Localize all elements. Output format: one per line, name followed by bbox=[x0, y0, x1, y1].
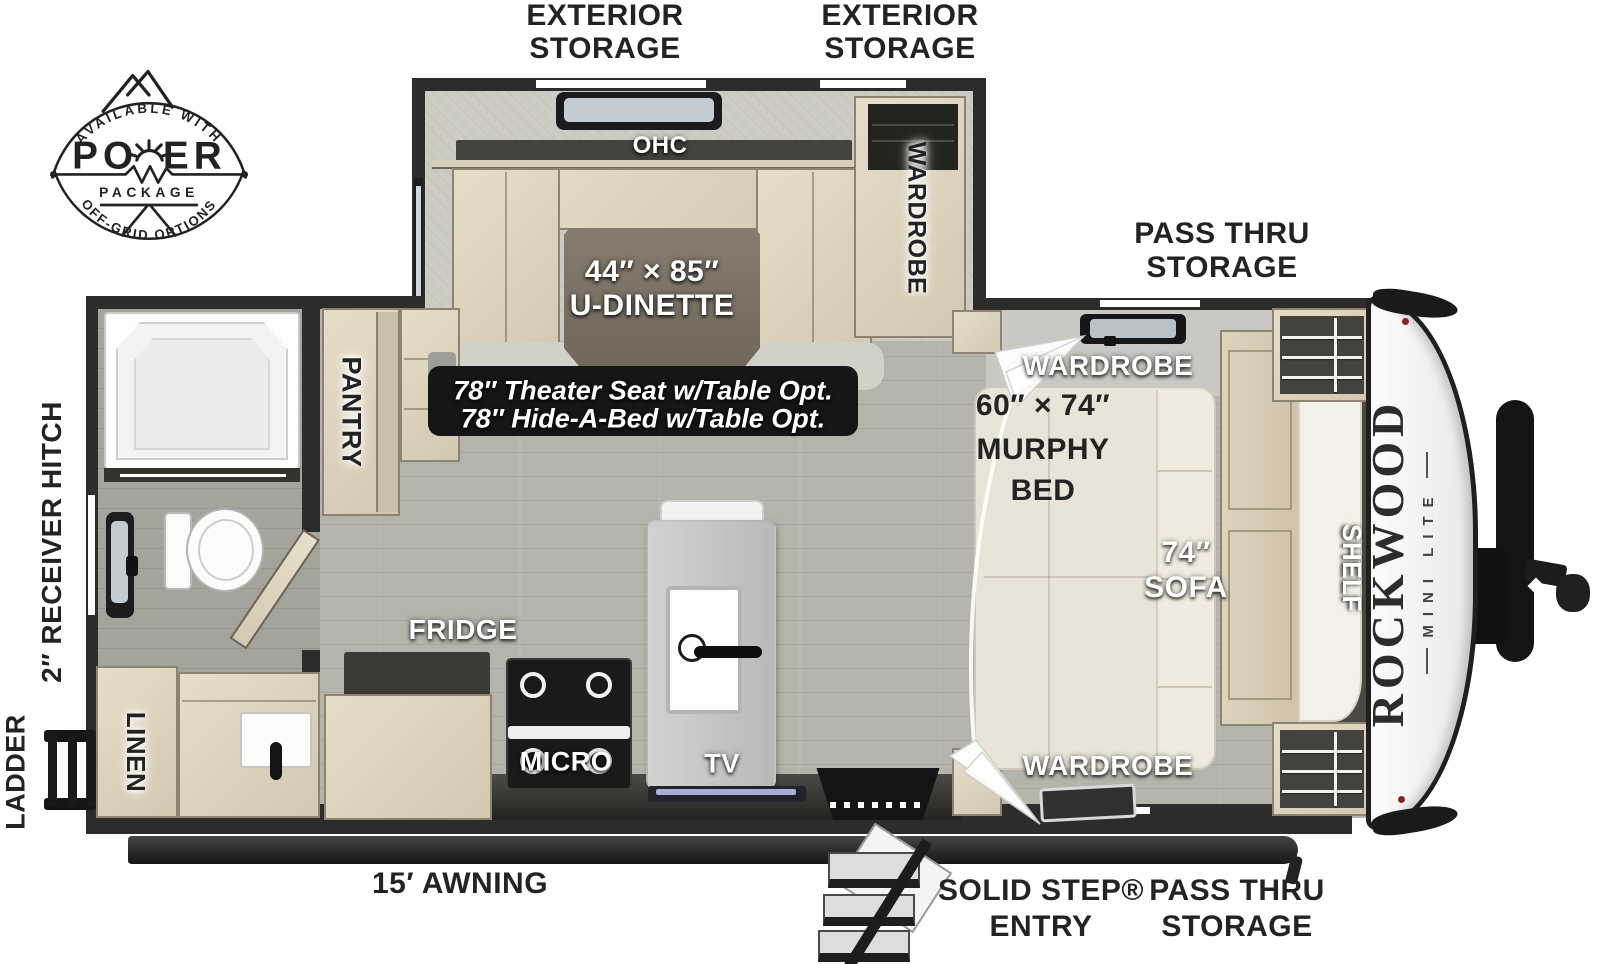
pass-thru-top-label-line1: PASS THRU bbox=[1134, 219, 1310, 249]
window-crank bbox=[1104, 336, 1116, 346]
note-line2: 78″ Hide-A-Bed w/Table Opt. bbox=[461, 406, 825, 433]
tv-label: TV bbox=[704, 751, 740, 778]
pass-thru-bottom-label-line2: STORAGE bbox=[1161, 912, 1312, 942]
sofa-cushion-seam bbox=[1158, 470, 1212, 472]
murphy-label: MURPHY bbox=[976, 435, 1109, 465]
ladder-rung bbox=[87, 734, 96, 806]
slide-window-glass bbox=[564, 98, 714, 122]
shelf-rail bbox=[1282, 356, 1362, 359]
wall-gap-rear-window bbox=[88, 495, 95, 615]
receiver-hitch-label: 2″ RECEIVER HITCH bbox=[38, 401, 66, 683]
front-window-glass bbox=[1090, 319, 1176, 338]
toilet-seat bbox=[198, 519, 254, 581]
burner bbox=[586, 672, 612, 698]
pantry-label: PANTRY bbox=[338, 357, 365, 468]
shelf-rail bbox=[1282, 376, 1362, 379]
linen-label: LINEN bbox=[123, 712, 149, 793]
wall-gap-front-top bbox=[1100, 300, 1200, 307]
vanity-seam bbox=[182, 700, 316, 702]
pass-thru-top-label-line2: STORAGE bbox=[1146, 253, 1297, 283]
sink-strainer-dots bbox=[830, 802, 924, 808]
micro-label: MICRO bbox=[520, 749, 613, 776]
ladder-rung bbox=[48, 734, 57, 806]
murphy-bed-label: BED bbox=[1011, 476, 1076, 506]
note-line1: 78″ Theater Seat w/Table Opt. bbox=[453, 378, 833, 405]
fridge-label: FRIDGE bbox=[409, 616, 518, 644]
brand-rule-right bbox=[1426, 452, 1428, 478]
pantry-drawer-stack bbox=[376, 312, 398, 512]
bathroom-wall-upper bbox=[302, 308, 320, 532]
brand-sub-text: MINI LITE bbox=[1420, 488, 1437, 637]
entry-step-2 bbox=[823, 894, 915, 926]
bed-seam bbox=[984, 576, 1154, 578]
brand-name: ROCKWOOD bbox=[1361, 293, 1414, 833]
badge-package-text: PACKAGE bbox=[99, 185, 199, 200]
exterior-storage-label-1-line2: STORAGE bbox=[529, 34, 680, 64]
shower-glass-line bbox=[120, 474, 286, 477]
exterior-storage-door-gap-2 bbox=[820, 80, 906, 88]
brand-subname: MINI LITE bbox=[1420, 293, 1437, 833]
shelf-bottom-interior bbox=[1280, 730, 1364, 808]
ladder-label: LADDER bbox=[3, 714, 30, 830]
sofa-size-label: 74″ bbox=[1161, 538, 1210, 568]
shelf-label: SHELF bbox=[1339, 524, 1365, 612]
tv-screen bbox=[656, 789, 796, 795]
bath-faucet bbox=[270, 742, 282, 780]
slide-side-window-glass bbox=[416, 186, 421, 298]
brand-rule-left bbox=[1426, 648, 1428, 674]
riser-panel bbox=[1228, 530, 1292, 700]
line-dot-right bbox=[242, 171, 249, 178]
badge-word-right: ER bbox=[163, 134, 227, 177]
oven-handle bbox=[508, 726, 630, 739]
awning-label: 15′ AWNING bbox=[372, 869, 548, 899]
ladder-rung bbox=[68, 734, 77, 806]
shelf-top-interior bbox=[1280, 316, 1364, 394]
shelf-post bbox=[1334, 732, 1337, 806]
fridge bbox=[324, 694, 492, 820]
exterior-storage-label-2-line1: EXTERIOR bbox=[821, 1, 978, 31]
wardrobe-top-label: WARDROBE bbox=[1023, 352, 1193, 380]
dinette-size-label: 44″ × 85″ bbox=[585, 257, 719, 287]
rv-floorplan: AVAILABLE WITH OFF-GRID OPTIONS PO ER PA… bbox=[0, 0, 1600, 964]
window-latch bbox=[126, 556, 138, 576]
wardrobe-bottom-label: WARDROBE bbox=[1023, 752, 1193, 780]
wardrobe-glass-top bbox=[1039, 784, 1137, 823]
shelf-rail bbox=[1282, 336, 1362, 339]
exterior-storage-label-1-line1: EXTERIOR bbox=[526, 1, 683, 31]
sofa-cushion-seam bbox=[1158, 686, 1212, 688]
fridge-top-vent bbox=[344, 652, 490, 698]
solid-step-label-line1: SOLID STEP® bbox=[938, 876, 1144, 906]
brand-mark: ROCKWOOD MINI LITE bbox=[1361, 293, 1481, 833]
badge-arc-bottom-text: OFF-GRID OPTIONS bbox=[78, 196, 219, 242]
door-handle bbox=[694, 646, 762, 658]
dinette-label: U-DINETTE bbox=[570, 291, 735, 321]
slide-wall-right bbox=[973, 78, 986, 312]
pass-thru-bottom-label-line1: PASS THRU bbox=[1149, 876, 1325, 906]
bed-corner-cabinet-top bbox=[952, 310, 1002, 354]
sofa-label: SOFA bbox=[1144, 573, 1228, 603]
murphy-size-label: 60″ × 74″ bbox=[976, 391, 1110, 421]
solid-step-label-line2: ENTRY bbox=[989, 912, 1092, 942]
jack-handle-knob bbox=[1556, 574, 1590, 612]
awning-bar bbox=[128, 836, 1298, 864]
power-package-badge: AVAILABLE WITH OFF-GRID OPTIONS PO ER PA… bbox=[42, 44, 256, 258]
slide-wardrobe-label: WARDROBE bbox=[904, 142, 929, 295]
shelf-rail bbox=[1282, 790, 1362, 793]
shelf-rail bbox=[1282, 750, 1362, 753]
exterior-storage-label-2-line2: STORAGE bbox=[824, 34, 975, 64]
line-dot-left bbox=[50, 171, 57, 178]
shower-pan-inner bbox=[134, 338, 270, 450]
burner bbox=[520, 672, 546, 698]
shelf-post bbox=[1334, 318, 1337, 392]
wardrobe-vent-line bbox=[872, 124, 954, 126]
shelf-rail bbox=[1282, 770, 1362, 773]
ohc-label: OHC bbox=[633, 134, 688, 158]
exterior-storage-door-gap-1 bbox=[536, 80, 706, 88]
